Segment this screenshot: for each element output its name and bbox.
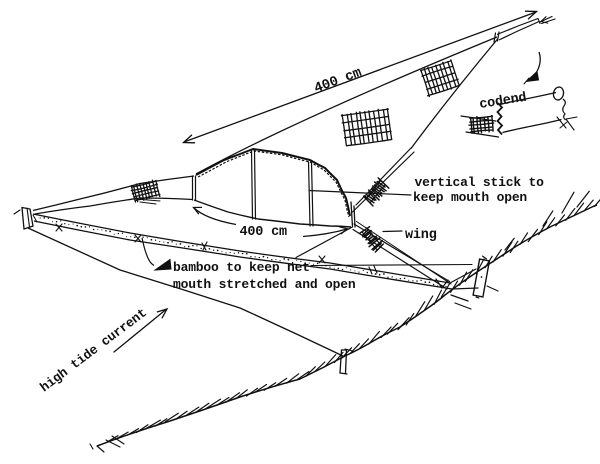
svg-text:400 cm: 400 cm bbox=[240, 225, 288, 240]
svg-text:wing: wing bbox=[405, 228, 437, 243]
svg-text:keep mouth open: keep mouth open bbox=[413, 190, 527, 205]
svg-text:mouth stretched and open: mouth stretched and open bbox=[173, 277, 356, 292]
svg-text:bamboo to keep net: bamboo to keep net bbox=[173, 260, 310, 275]
svg-text:vertical stick to: vertical stick to bbox=[415, 175, 545, 190]
